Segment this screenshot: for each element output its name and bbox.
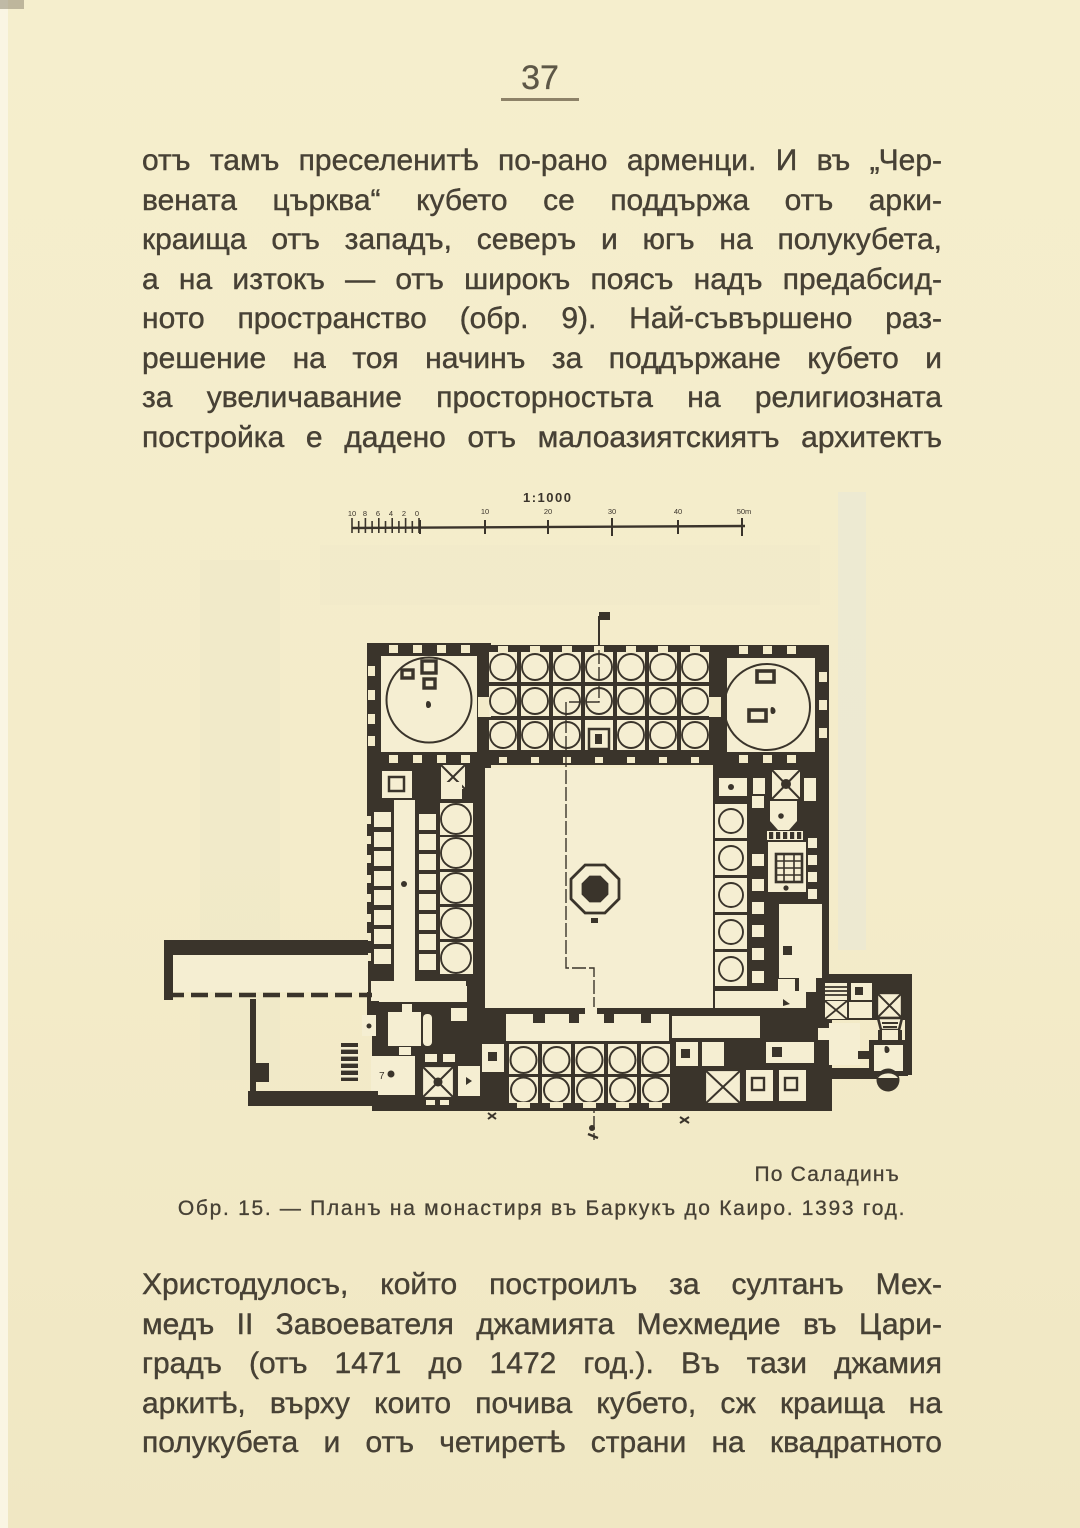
svg-text:40: 40 xyxy=(674,507,682,516)
svg-text:8: 8 xyxy=(363,509,367,518)
svg-text:10: 10 xyxy=(348,509,356,518)
svg-text:4: 4 xyxy=(389,509,393,518)
svg-text:50m: 50m xyxy=(737,507,752,516)
svg-text:30: 30 xyxy=(608,507,616,516)
svg-text:2: 2 xyxy=(402,509,406,518)
svg-text:0: 0 xyxy=(415,509,419,518)
svg-text:10: 10 xyxy=(481,507,489,516)
svg-text:1:1000: 1:1000 xyxy=(523,490,572,505)
svg-text:7: 7 xyxy=(379,1071,385,1082)
svg-text:6: 6 xyxy=(376,509,380,518)
svg-text:20: 20 xyxy=(544,507,552,516)
